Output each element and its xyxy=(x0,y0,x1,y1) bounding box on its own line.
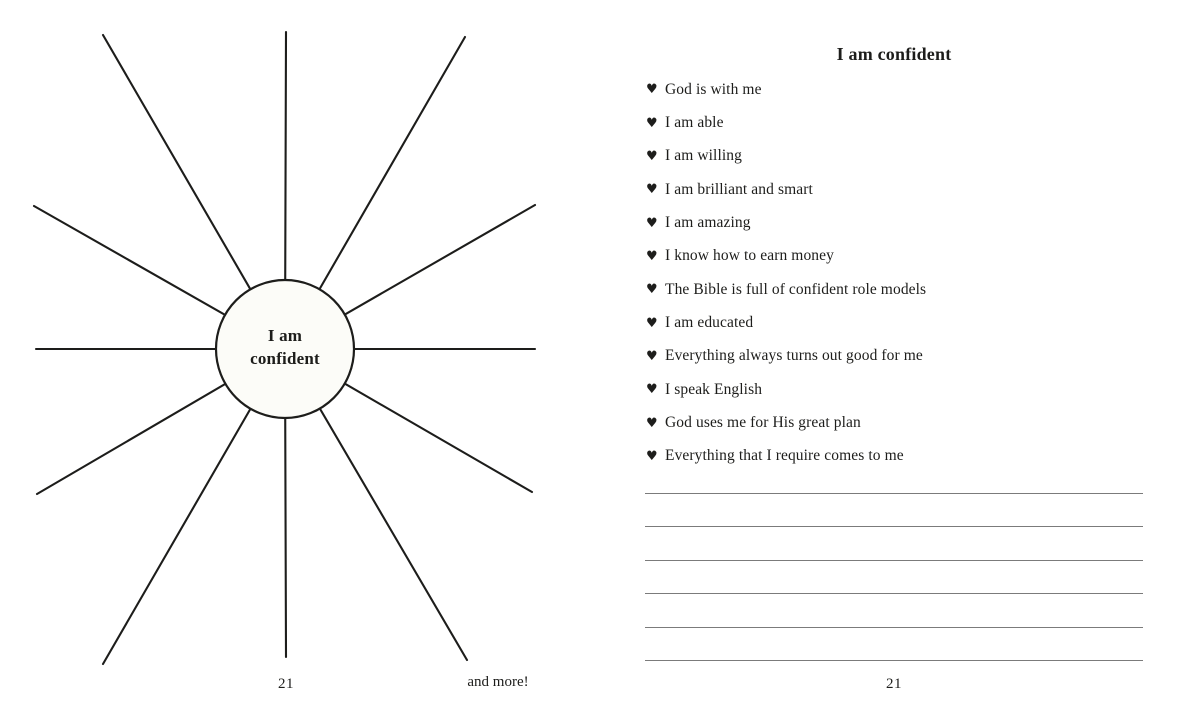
affirmation-text: I am able xyxy=(665,114,724,132)
footer-note: and more! xyxy=(433,674,563,691)
heart-bullet-icon: ♥ xyxy=(645,317,665,330)
writing-line xyxy=(645,560,1143,561)
affirmation-item: ♥I know how to earn money xyxy=(645,240,1143,273)
affirmation-text: I am willing xyxy=(665,147,742,165)
heart-bullet-icon: ♥ xyxy=(645,450,665,463)
heart-bullet-icon: ♥ xyxy=(645,283,665,296)
affirmation-text: Everything always turns out good for me xyxy=(665,347,923,365)
diagram-center-label: I am confident xyxy=(205,324,365,370)
affirmation-text: The Bible is full of confident role mode… xyxy=(665,281,926,299)
writing-line xyxy=(645,493,1143,494)
affirmation-item: ♥God uses me for His great plan xyxy=(645,406,1143,439)
affirmation-text: I am amazing xyxy=(665,214,751,232)
right-page-number: 21 xyxy=(645,676,1143,693)
affirmation-item: ♥Everything always turns out good for me xyxy=(645,340,1143,373)
book-spread: I am confident 21 and more! I am confide… xyxy=(0,0,1181,722)
writing-line xyxy=(645,660,1143,661)
affirmation-item: ♥I am willing xyxy=(645,140,1143,173)
affirmation-text: God is with me xyxy=(665,81,762,99)
right-page: I am confident ♥God is with me♥I am able… xyxy=(590,0,1181,722)
writing-line xyxy=(645,526,1143,527)
affirmation-list: ♥God is with me♥I am able♥I am willing♥I… xyxy=(645,73,1143,473)
left-page-number: 21 xyxy=(236,676,336,693)
affirmation-text: Everything that I require comes to me xyxy=(665,447,904,465)
affirmation-item: ♥The Bible is full of confident role mod… xyxy=(645,273,1143,306)
center-label-line2: confident xyxy=(205,347,365,370)
affirmation-text: I am brilliant and smart xyxy=(665,181,813,199)
center-label-line1: I am xyxy=(205,324,365,347)
heart-bullet-icon: ♥ xyxy=(645,250,665,263)
page-title: I am confident xyxy=(645,44,1143,65)
heart-bullet-icon: ♥ xyxy=(645,150,665,163)
heart-bullet-icon: ♥ xyxy=(645,217,665,230)
affirmation-text: I am educated xyxy=(665,314,753,332)
heart-bullet-icon: ♥ xyxy=(645,350,665,363)
writing-line xyxy=(645,593,1143,594)
heart-bullet-icon: ♥ xyxy=(645,383,665,396)
heart-bullet-icon: ♥ xyxy=(645,117,665,130)
affirmation-item: ♥I am able xyxy=(645,106,1143,139)
affirmation-item: ♥I am educated xyxy=(645,306,1143,339)
affirmation-item: ♥God is with me xyxy=(645,73,1143,106)
left-page: I am confident 21 and more! xyxy=(0,0,590,722)
affirmation-item: ♥I am brilliant and smart xyxy=(645,173,1143,206)
affirmation-text: I speak English xyxy=(665,381,762,399)
affirmation-item: ♥I speak English xyxy=(645,373,1143,406)
heart-bullet-icon: ♥ xyxy=(645,83,665,96)
heart-bullet-icon: ♥ xyxy=(645,417,665,430)
affirmation-item: ♥I am amazing xyxy=(645,206,1143,239)
heart-bullet-icon: ♥ xyxy=(645,183,665,196)
affirmation-text: God uses me for His great plan xyxy=(665,414,861,432)
writing-line xyxy=(645,627,1143,628)
affirmation-text: I know how to earn money xyxy=(665,247,834,265)
affirmation-item: ♥Everything that I require comes to me xyxy=(645,440,1143,473)
